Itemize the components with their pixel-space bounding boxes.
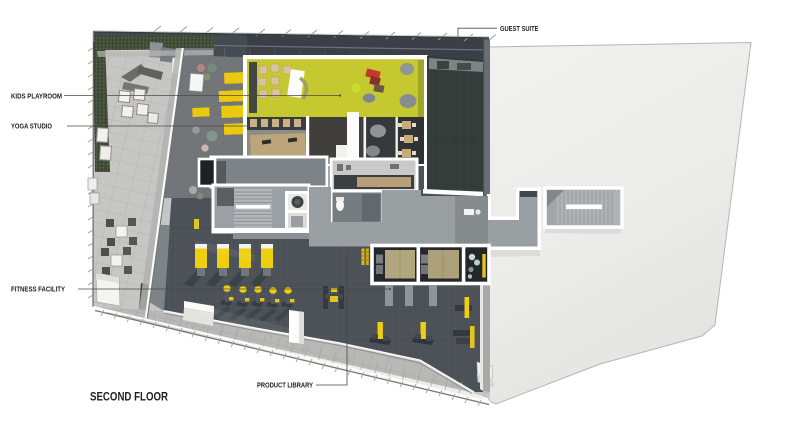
svg-text:PRODUCT LIBRARY: PRODUCT LIBRARY [257, 381, 313, 390]
svg-text:GUEST SUITE: GUEST SUITE [500, 24, 539, 33]
svg-text:YOGA STUDIO: YOGA STUDIO [11, 122, 52, 131]
svg-text:FITNESS FACILITY: FITNESS FACILITY [11, 285, 65, 294]
svg-text:SECOND FLOOR: SECOND FLOOR [90, 390, 168, 404]
svg-text:KIDS PLAYROOM: KIDS PLAYROOM [11, 92, 62, 101]
